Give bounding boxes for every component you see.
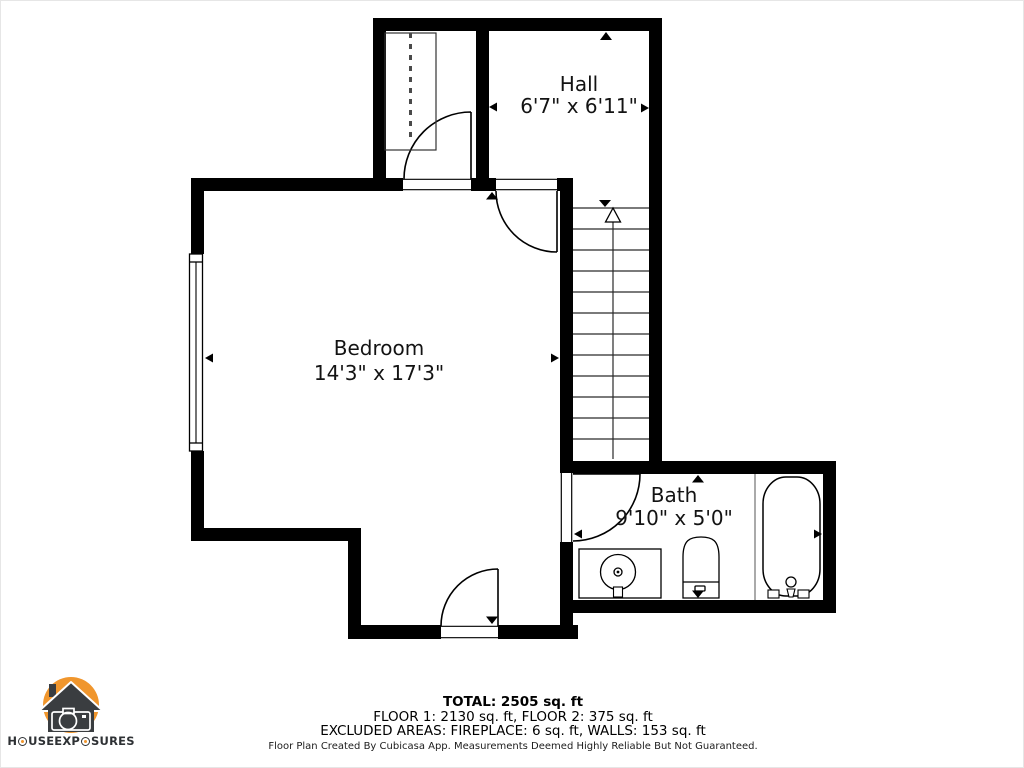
wall-bedroom-left-upper: [191, 191, 204, 254]
bath-label: Bath: [651, 483, 698, 507]
bedroom-dimensions: 14'3" x 17'3": [314, 361, 444, 385]
hall-dim-arrow-left: [489, 103, 497, 112]
wall-top: [373, 18, 662, 31]
bath-door-threshold: [560, 473, 573, 542]
hall-dimensions: 6'7" x 6'11": [520, 94, 638, 118]
hall-door-swing-icon: [496, 191, 557, 252]
disclaimer-text: Floor Plan Created By Cubicasa App. Meas…: [1, 741, 1024, 752]
wall-bedroom-right-lower: [560, 542, 573, 639]
walls: [191, 18, 836, 639]
wall-bedroom-bottom-a: [348, 625, 441, 639]
floorplan-drawing: Hall 6'7" x 6'11" Bedroom 14'3" x 17'3" …: [1, 1, 1024, 768]
bath-fixtures: [579, 474, 820, 600]
wall-closet-left: [373, 31, 386, 191]
hall-dim-arrow-down: [599, 200, 611, 207]
sink-icon: [579, 549, 661, 598]
stairs: [573, 208, 649, 459]
toilet-icon: [683, 537, 719, 598]
house-exposures-logo: HUSE EXPSURES: [15, 671, 127, 748]
wall-bedroom-left-lower: [191, 451, 204, 541]
hall-label: Hall: [560, 72, 598, 96]
closet-door-threshold: [403, 178, 471, 191]
hall-door-threshold: [496, 178, 557, 191]
total-area-text: TOTAL: 2505 sq. ft: [1, 694, 1024, 710]
wall-step-vertical: [348, 541, 361, 639]
bedroom-dim-arrow-left: [205, 354, 213, 363]
bedroom-door-threshold: [441, 625, 498, 639]
closet-door-swing-icon: [404, 112, 471, 179]
wall-step-horizontal: [191, 528, 361, 541]
wall-bedroom-right-upper: [560, 191, 573, 473]
bath-dim-arrow-up: [692, 475, 704, 483]
wall-bedroom-top-b: [471, 178, 496, 191]
wall-closet-hall-divider: [476, 31, 489, 178]
wall-bath-right: [823, 461, 836, 613]
bedroom-label: Bedroom: [334, 336, 424, 360]
bathtub-icon: [763, 477, 820, 598]
stair-treads: [573, 208, 649, 439]
lens-o-icon: [81, 737, 90, 746]
wall-bath-bottom: [560, 600, 836, 613]
window: [190, 254, 203, 451]
camera-house-logo-icon: [33, 671, 109, 733]
wall-hall-right: [649, 31, 662, 474]
lens-o-icon: [18, 737, 27, 746]
wall-bedroom-top-c: [557, 178, 573, 191]
hall-dim-arrow-up: [600, 32, 612, 40]
wall-bath-top: [573, 461, 836, 474]
bedroom-dim-arrow-down: [486, 617, 498, 625]
hall-dim-arrow-right: [641, 104, 649, 113]
logo-text: HUSE EXPSURES: [15, 734, 127, 748]
floorplan-canvas: Hall 6'7" x 6'11" Bedroom 14'3" x 17'3" …: [0, 0, 1024, 768]
excluded-areas-text: EXCLUDED AREAS: FIREPLACE: 6 sq. ft, WAL…: [1, 723, 1024, 739]
bath-dim-arrow-left: [574, 530, 582, 539]
bath-dimensions: 9'10" x 5'0": [615, 506, 733, 530]
closet: [385, 33, 436, 150]
bedroom-dim-arrow-right: [551, 354, 559, 363]
stairs-up-arrow-icon: [606, 208, 621, 222]
wall-bedroom-top-a: [191, 178, 403, 191]
